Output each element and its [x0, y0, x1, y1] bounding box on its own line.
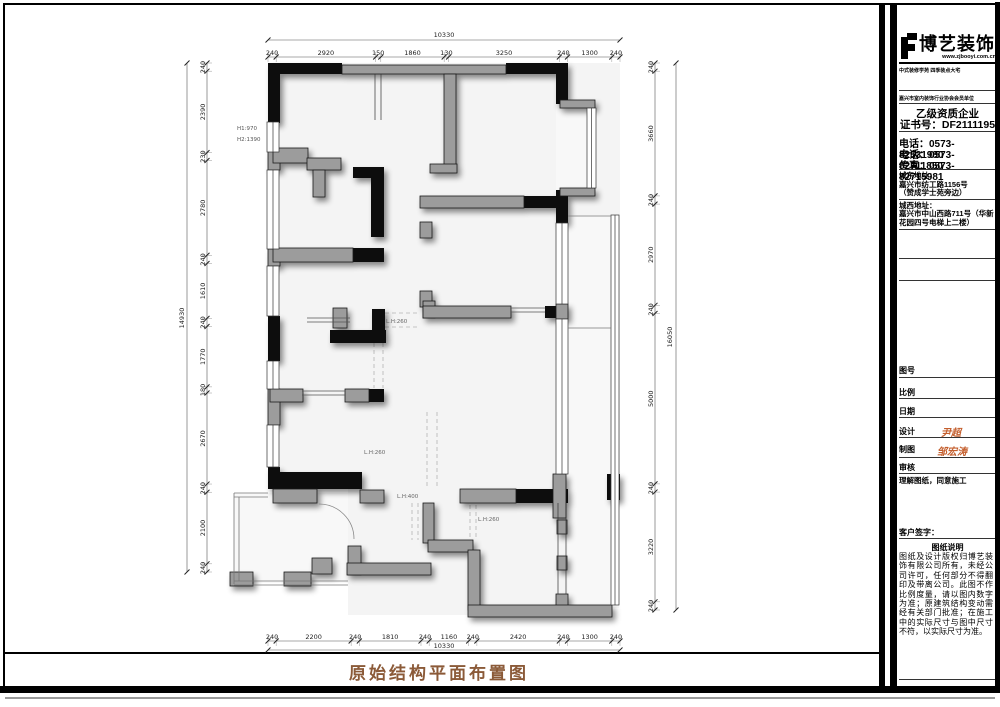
dim-label: 240 — [557, 633, 569, 641]
field-date: 日期 — [899, 406, 996, 417]
dim-label: 180 — [199, 384, 207, 396]
dim-label: 240 — [647, 194, 655, 206]
field-review: 审核 — [899, 462, 996, 473]
dim-label: 2670 — [199, 430, 207, 447]
beam-label-2: L.H:260 — [364, 450, 386, 456]
dim-label: 1810 — [382, 633, 399, 641]
dim-label: 240 — [199, 61, 207, 73]
address-west: 嘉兴市中山西路711号（华新花园四号电梯上二楼） — [899, 210, 996, 227]
company-tagline: 中式装修学苑 四季装点大宅 — [899, 67, 996, 74]
company-name: 博艺装饰 — [919, 30, 996, 56]
dim-right-total: 16050 — [666, 327, 674, 348]
dim-label: 240 — [647, 600, 655, 612]
dim-label: 3250 — [496, 49, 513, 57]
dim-label: 1860 — [404, 49, 421, 57]
dim-label: 240 — [349, 633, 361, 641]
company-website: www.zjbooyi.com.cn — [899, 54, 996, 60]
frame-separator-bar-2 — [890, 3, 897, 686]
dim-top-total: 10330 — [434, 31, 455, 39]
dim-label: 2200 — [305, 633, 322, 641]
dim-label: 240 — [419, 633, 431, 641]
dim-label: 3220 — [647, 539, 655, 556]
dim-left-total: 14930 — [178, 308, 186, 329]
sill-height-label-1: H1:970 — [237, 126, 257, 132]
dim-label: 130 — [440, 49, 452, 57]
beam-label-3: L.H:400 — [397, 494, 419, 500]
dim-label: 1610 — [199, 283, 207, 300]
dim-label: 240 — [647, 482, 655, 494]
membership-line: 嘉兴市室内装饰行业协会会员单位 — [899, 95, 996, 102]
logo-underline — [899, 62, 995, 64]
dim-label: 240 — [199, 316, 207, 328]
dim-label: 240 — [199, 253, 207, 265]
beam-label-1: L.H:260 — [386, 319, 408, 325]
drafter-signature: 邹宏涛 — [937, 443, 996, 458]
beam-label-4: L.H:260 — [478, 517, 500, 523]
dim-label: 1300 — [581, 633, 598, 641]
approval-note: 理解图纸，同意施工 — [899, 477, 996, 486]
field-scale: 比例 — [899, 387, 996, 398]
dim-label: 240 — [647, 303, 655, 315]
dim-label: 150 — [372, 49, 384, 57]
dim-label: 240 — [467, 633, 479, 641]
dim-label: 240 — [610, 49, 622, 57]
drawing-title: 原始结构平面布置图 — [0, 659, 878, 684]
dim-label: 2970 — [647, 246, 655, 263]
dim-label: 3660 — [647, 125, 655, 142]
floor-plan-canvas: 10330 10330 14930 16050 2402920150186013… — [0, 0, 880, 707]
address-east-line2: （赞成学士苑旁边） — [899, 189, 996, 198]
dim-label: 240 — [266, 49, 278, 57]
dim-label: 1300 — [581, 49, 598, 57]
title-block: 博艺装饰 www.zjbooyi.com.cn 中式装修学苑 四季装点大宅 嘉兴… — [899, 0, 996, 707]
sill-height-label-2: H2:1390 — [237, 137, 261, 143]
dim-label: 240 — [647, 61, 655, 73]
dim-label: 1160 — [441, 633, 458, 641]
dim-bottom-total: 10330 — [434, 642, 455, 650]
dim-label: 2420 — [510, 633, 527, 641]
dim-label: 2920 — [318, 49, 335, 57]
dim-label: 2780 — [199, 200, 207, 217]
notes-body: 图纸及设计版权归博艺装饰有限公司所有，未经公司许可，任何部分不得翻印及带离公司。… — [899, 552, 993, 637]
field-drawing-no: 图号 — [899, 365, 996, 376]
dim-label: 1770 — [199, 348, 207, 365]
client-signature-label: 客户签字： — [899, 527, 996, 538]
dim-label: 230 — [199, 150, 207, 162]
dim-label: 240 — [199, 562, 207, 574]
dim-label: 2390 — [199, 104, 207, 121]
dim-label: 240 — [557, 49, 569, 57]
dim-label: 240 — [266, 633, 278, 641]
dim-label: 5000 — [647, 390, 655, 407]
certificate-number: 证书号：DF2111195 — [899, 117, 996, 132]
dim-label: 240 — [199, 482, 207, 494]
dim-label: 2100 — [199, 520, 207, 537]
dim-label: 240 — [610, 633, 622, 641]
